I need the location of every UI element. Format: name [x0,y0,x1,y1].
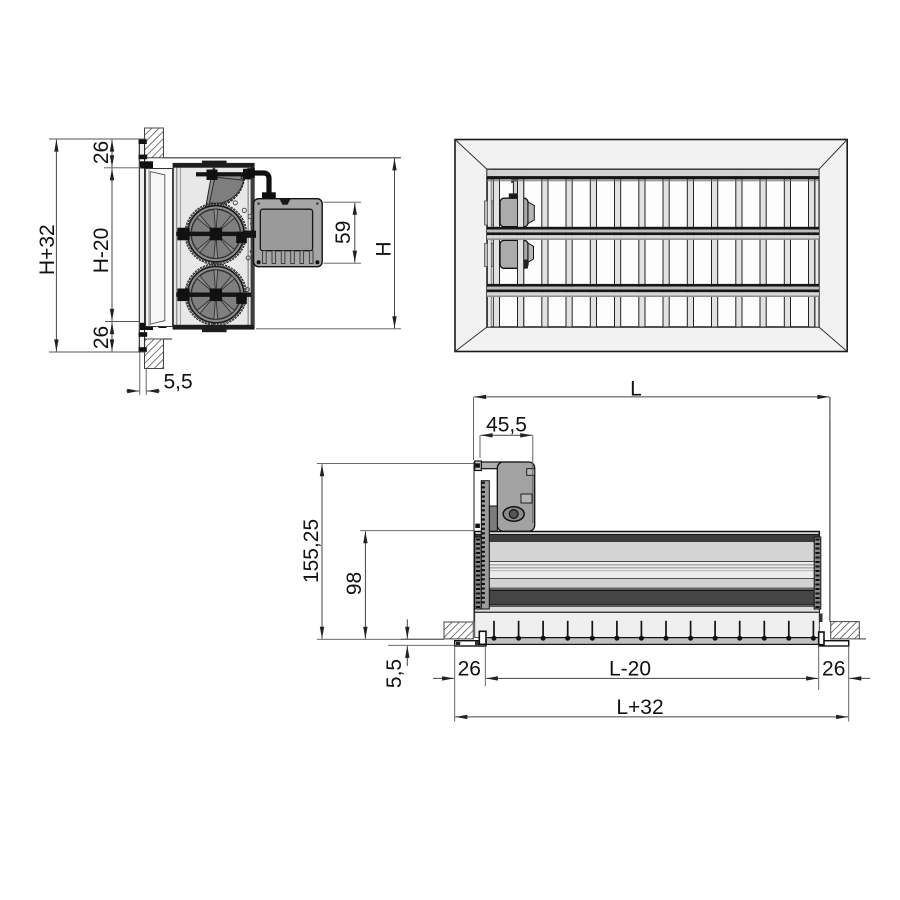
svg-text:H: H [372,241,395,256]
svg-text:26: 26 [822,657,845,680]
svg-text:26: 26 [90,141,113,164]
svg-text:H-20: H-20 [90,228,113,274]
svg-text:L+32: L+32 [616,696,663,719]
svg-text:59: 59 [332,221,355,244]
svg-text:45,5: 45,5 [486,414,527,437]
svg-text:26: 26 [90,326,113,349]
svg-text:98: 98 [343,572,366,595]
svg-text:5,5: 5,5 [383,659,406,688]
svg-text:155,25: 155,25 [300,519,323,583]
svg-text:L: L [630,377,642,400]
svg-text:26: 26 [458,657,481,680]
svg-text:5,5: 5,5 [164,371,193,394]
svg-text:H+32: H+32 [36,224,59,275]
svg-text:L-20: L-20 [609,658,651,681]
